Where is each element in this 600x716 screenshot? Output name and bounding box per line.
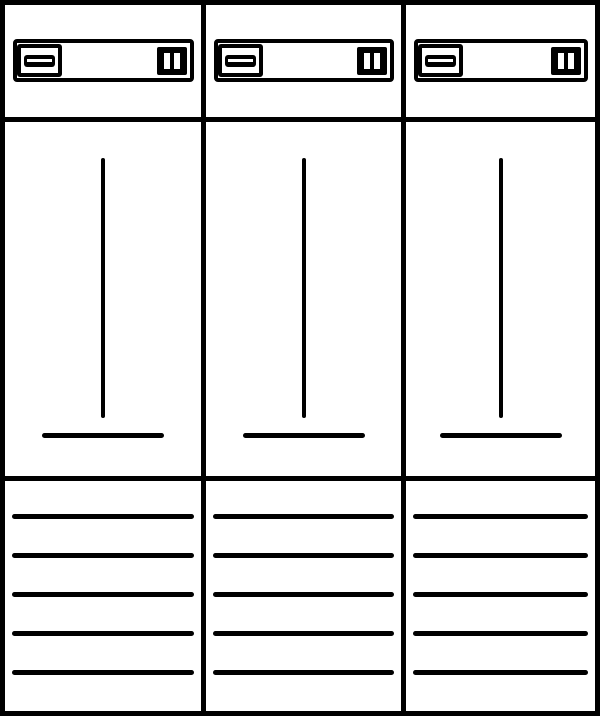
vertical-guide-line	[302, 158, 306, 418]
meter-field-2	[206, 5, 406, 711]
header-section	[406, 5, 595, 122]
slot-right	[174, 53, 180, 69]
twin-slot-icon	[157, 47, 187, 75]
terminal-line	[12, 592, 194, 597]
slot-slit	[27, 59, 52, 62]
rail-panel	[214, 39, 394, 82]
terminal-field-section	[5, 481, 201, 711]
slot-left	[164, 53, 170, 69]
rail-panel	[13, 39, 194, 82]
terminal-field-section	[406, 481, 595, 711]
slot-bar-icon	[24, 55, 55, 67]
header-section	[206, 5, 401, 122]
base-line	[440, 433, 562, 438]
slot-left	[364, 53, 370, 69]
terminal-field-section	[206, 481, 401, 711]
vertical-guide-line	[101, 158, 105, 418]
terminal-line	[12, 514, 194, 519]
slotted-mount-block-icon	[218, 44, 263, 77]
terminal-line	[213, 553, 394, 558]
meter-field-3	[406, 5, 595, 711]
terminal-line	[413, 631, 588, 636]
header-section	[5, 5, 201, 122]
slot-bar-icon	[225, 55, 256, 67]
vertical-guide-line	[499, 158, 503, 418]
terminal-line	[213, 514, 394, 519]
terminal-line	[12, 670, 194, 675]
terminal-line	[413, 553, 588, 558]
meter-field-section	[206, 122, 401, 481]
base-line	[42, 433, 164, 438]
slot-slit	[428, 59, 453, 62]
rail-panel	[414, 39, 588, 82]
terminal-line	[413, 670, 588, 675]
meter-cabinet-diagram	[0, 0, 600, 716]
terminal-line	[213, 592, 394, 597]
slot-slit	[228, 59, 253, 62]
slotted-mount-block-icon	[418, 44, 463, 77]
terminal-line	[213, 670, 394, 675]
slot-right	[374, 53, 380, 69]
terminal-line	[12, 631, 194, 636]
terminal-line	[413, 592, 588, 597]
slot-bar-icon	[425, 55, 456, 67]
twin-slot-icon	[357, 47, 387, 75]
terminal-line	[213, 631, 394, 636]
slot-left	[558, 53, 564, 69]
terminal-line	[413, 514, 588, 519]
twin-slot-icon	[551, 47, 581, 75]
slotted-mount-block-icon	[17, 44, 62, 77]
meter-field-section	[5, 122, 201, 481]
meter-field-1	[5, 5, 206, 711]
terminal-line	[12, 553, 194, 558]
base-line	[243, 433, 365, 438]
slot-right	[568, 53, 574, 69]
meter-field-section	[406, 122, 595, 481]
